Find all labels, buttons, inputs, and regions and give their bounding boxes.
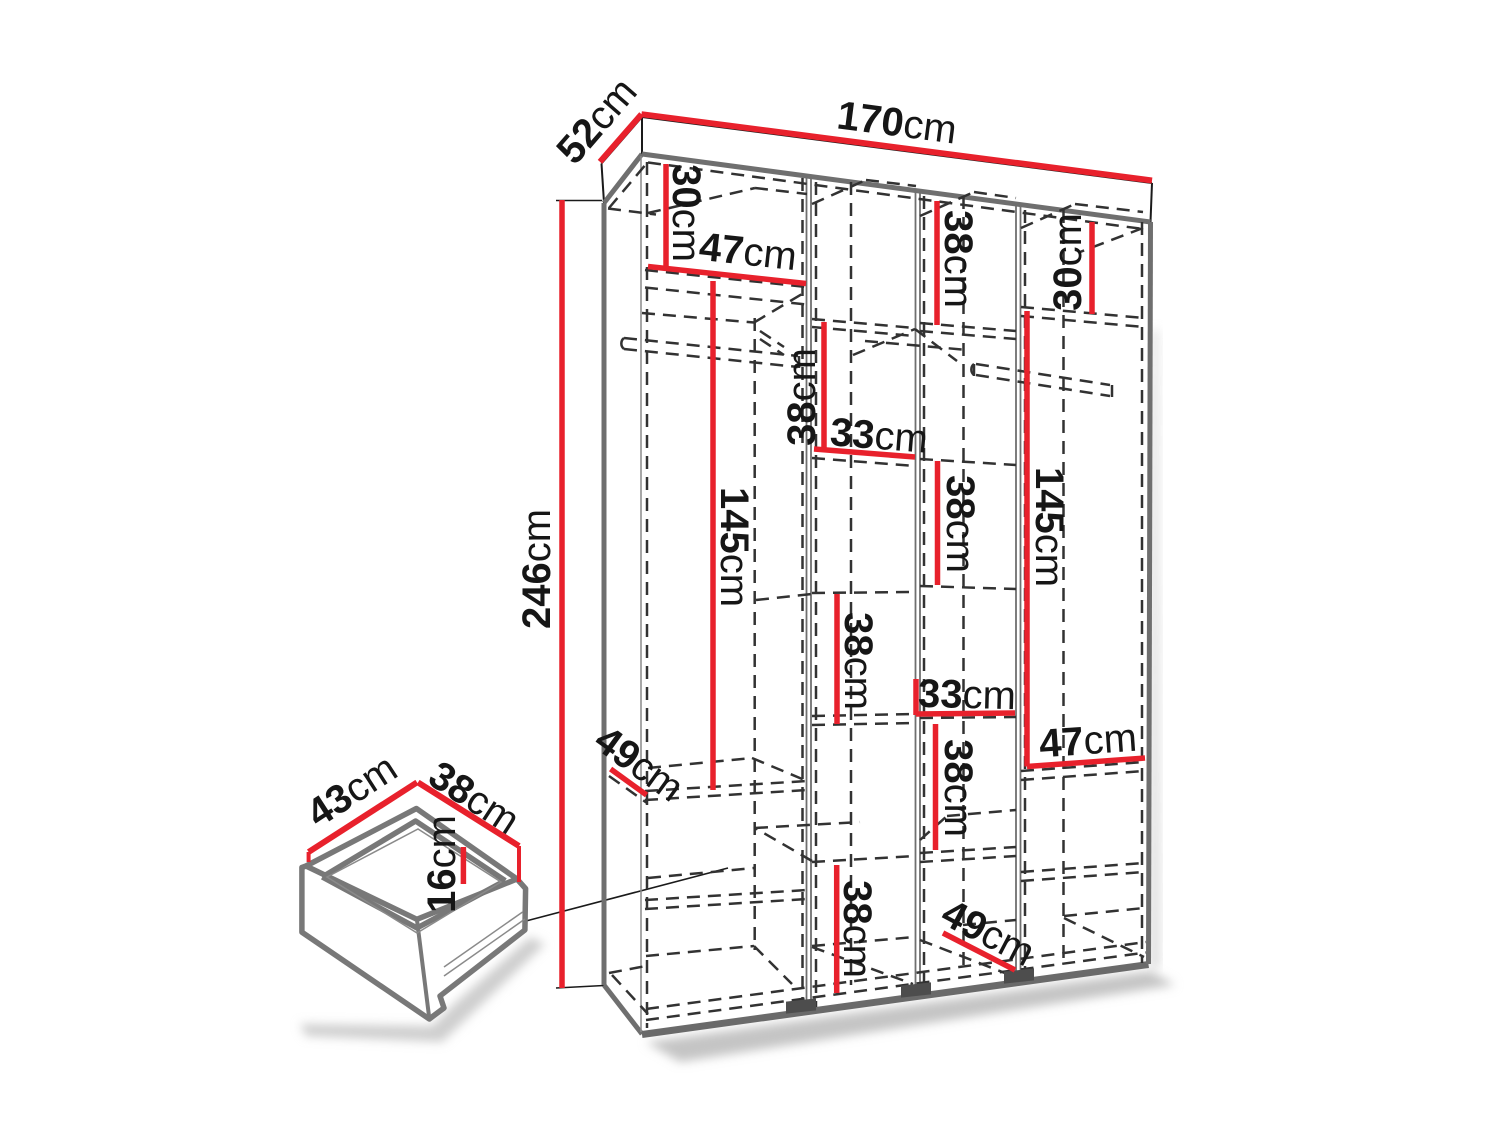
svg-text:16cm: 16cm <box>420 815 464 913</box>
svg-text:145cm: 145cm <box>712 487 756 607</box>
svg-text:38cm: 38cm <box>936 739 980 837</box>
svg-text:38cm: 38cm <box>835 880 879 978</box>
svg-text:246cm: 246cm <box>515 509 559 629</box>
svg-text:145cm: 145cm <box>1027 467 1071 587</box>
svg-text:33cm: 33cm <box>829 410 930 462</box>
svg-text:33cm: 33cm <box>918 672 1017 719</box>
svg-text:30cm: 30cm <box>1046 213 1090 311</box>
svg-text:47cm: 47cm <box>1038 716 1139 767</box>
svg-text:38cm: 38cm <box>836 612 880 710</box>
svg-text:38cm: 38cm <box>936 210 980 308</box>
svg-text:38cm: 38cm <box>938 475 982 573</box>
svg-text:38cm: 38cm <box>780 348 824 446</box>
